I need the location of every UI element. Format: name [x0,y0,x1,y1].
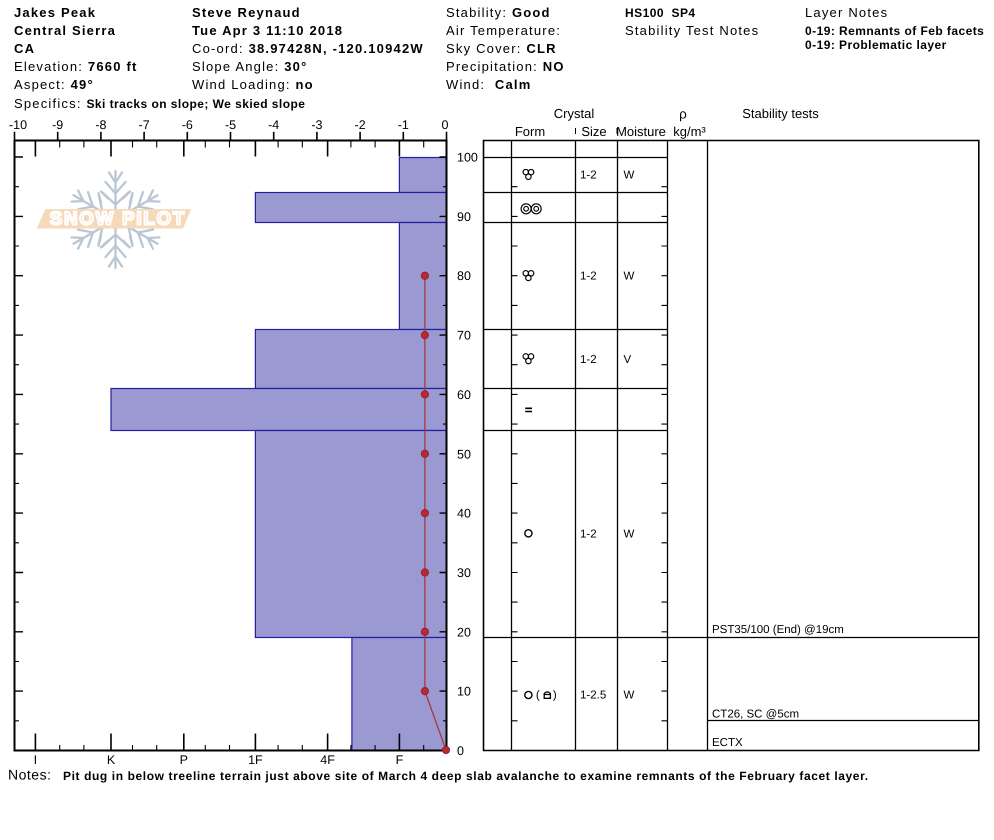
svg-text:1-2: 1-2 [580,529,597,541]
svg-text:30: 30 [457,566,471,580]
svg-text:SNOW PILOT: SNOW PILOT [50,208,186,229]
svg-text:80: 80 [457,269,471,283]
svg-text:10: 10 [457,685,471,699]
svg-text:-4: -4 [268,118,279,132]
svg-text:50: 50 [457,447,471,461]
svg-text:Size: Size [581,124,606,139]
svg-text:1-2: 1-2 [580,271,597,283]
svg-text:ρ: ρ [679,107,687,122]
svg-text:-2: -2 [355,118,366,132]
svg-text:ECTX: ECTX [712,737,743,749]
svg-text:(: ( [536,690,540,702]
svg-text:W: W [624,271,635,283]
svg-text:Notes:: Notes: [8,767,51,783]
svg-text:I: I [34,753,37,767]
svg-text:40: 40 [457,507,471,521]
svg-text:60: 60 [457,388,471,402]
svg-text:70: 70 [457,329,471,343]
svg-text:CT26, SC @5cm: CT26, SC @5cm [712,709,799,721]
svg-text:Form: Form [515,124,545,139]
svg-text:0: 0 [457,744,464,758]
svg-text:-6: -6 [182,118,193,132]
svg-text:-1: -1 [398,118,409,132]
svg-text:kg/m³: kg/m³ [673,124,706,139]
svg-text:K: K [107,753,116,767]
svg-text:W: W [624,170,635,182]
svg-text:-5: -5 [225,118,236,132]
svg-text:-7: -7 [139,118,150,132]
svg-text:4F: 4F [320,753,335,767]
svg-text:1-2: 1-2 [580,170,597,182]
svg-text:Crystal: Crystal [554,106,595,121]
svg-text:1-2: 1-2 [580,354,597,366]
svg-text:F: F [396,753,404,767]
svg-text:-8: -8 [95,118,106,132]
svg-text:1-2.5: 1-2.5 [580,690,606,702]
svg-text:-3: -3 [311,118,322,132]
svg-text:W: W [624,690,635,702]
svg-text:0: 0 [442,118,449,132]
svg-text:90: 90 [457,210,471,224]
svg-text:-9: -9 [52,118,63,132]
svg-text:20: 20 [457,625,471,639]
svg-text:-10: -10 [9,118,27,132]
svg-text:W: W [624,529,635,541]
svg-text:): ) [553,690,557,702]
svg-text:Stability tests: Stability tests [742,106,819,121]
svg-text:100: 100 [457,151,478,165]
svg-text:Pit dug in below treeline terr: Pit dug in below treeline terrain just a… [63,769,869,783]
svg-text:P: P [180,753,188,767]
svg-text:Moisture: Moisture [616,124,666,139]
svg-text:V: V [624,354,632,366]
svg-text:PST35/100 (End) @19cm: PST35/100 (End) @19cm [712,624,844,636]
svg-text:1F: 1F [248,753,263,767]
